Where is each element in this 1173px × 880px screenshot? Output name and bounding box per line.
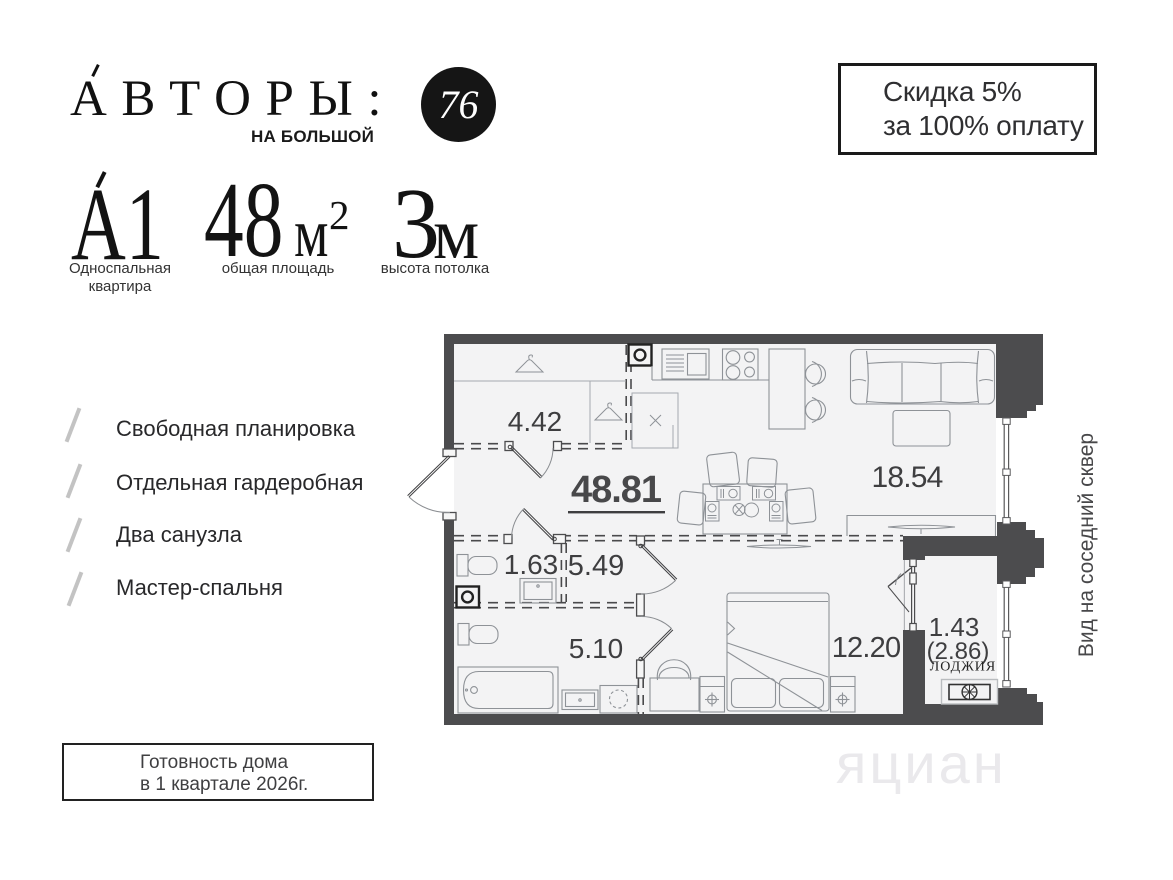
svg-text:5.10: 5.10 <box>569 633 624 664</box>
svg-text:48.81: 48.81 <box>571 469 662 511</box>
svg-text:12.20: 12.20 <box>832 632 901 664</box>
svg-text:ЛОДЖИЯ: ЛОДЖИЯ <box>930 660 996 675</box>
svg-text:1.63: 1.63 <box>504 549 559 580</box>
svg-text:5.49: 5.49 <box>568 550 624 582</box>
svg-text:18.54: 18.54 <box>871 461 942 494</box>
svg-text:4.42: 4.42 <box>508 406 563 437</box>
